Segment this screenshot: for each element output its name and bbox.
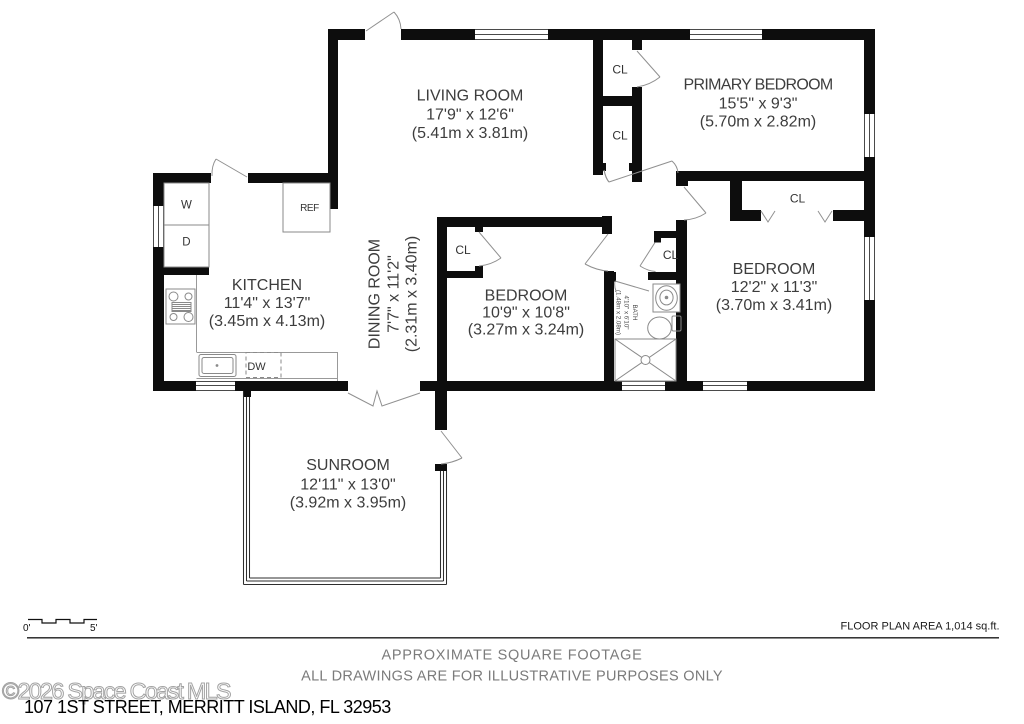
svg-text:CL: CL	[612, 129, 628, 143]
svg-text:(5.41m x 3.81m): (5.41m x 3.81m)	[412, 125, 528, 142]
svg-text:0': 0'	[23, 623, 31, 634]
svg-text:CL: CL	[663, 248, 679, 262]
svg-text:CL: CL	[790, 192, 806, 206]
svg-text:(3.45m x 4.13m): (3.45m x 4.13m)	[209, 313, 325, 330]
svg-text:(3.92m x 3.95m): (3.92m x 3.95m)	[290, 495, 406, 512]
svg-text:REF: REF	[300, 203, 319, 214]
svg-text:11'4" x 13'7": 11'4" x 13'7"	[224, 295, 311, 312]
svg-text:FLOOR PLAN AREA 1,014 sq.ft.: FLOOR PLAN AREA 1,014 sq.ft.	[841, 621, 1000, 633]
svg-text:LIVING ROOM: LIVING ROOM	[417, 88, 524, 105]
svg-text:(1.48m x 2.08m): (1.48m x 2.08m)	[614, 290, 621, 335]
svg-text:CL: CL	[612, 63, 628, 77]
svg-text:PRIMARY BEDROOM: PRIMARY BEDROOM	[684, 77, 833, 94]
svg-text:12'11" x 13'0": 12'11" x 13'0"	[300, 477, 395, 494]
svg-text:BEDROOM: BEDROOM	[485, 288, 568, 305]
svg-text:107 1ST STREET, MERRITT ISLAND: 107 1ST STREET, MERRITT ISLAND, FL 32953	[24, 697, 391, 717]
svg-text:17'9" x 12'6": 17'9" x 12'6"	[426, 107, 514, 124]
svg-text:BATH: BATH	[631, 304, 638, 320]
svg-text:W: W	[181, 200, 192, 212]
svg-text:15'5" x 9'3": 15'5" x 9'3"	[719, 96, 798, 113]
svg-text:DW: DW	[247, 361, 266, 373]
svg-text:CL: CL	[455, 243, 471, 257]
svg-text:BEDROOM: BEDROOM	[733, 261, 816, 278]
svg-text:APPROXIMATE SQUARE FOOTAGE: APPROXIMATE SQUARE FOOTAGE	[382, 648, 643, 664]
svg-text:ALL DRAWINGS ARE FOR ILLUSTRAT: ALL DRAWINGS ARE FOR ILLUSTRATIVE PURPOS…	[301, 669, 723, 685]
svg-text:7'7" x 11'2": 7'7" x 11'2"	[386, 255, 403, 333]
svg-text:DINING ROOM: DINING ROOM	[367, 239, 384, 349]
svg-text:4'10" x 6'10": 4'10" x 6'10"	[623, 296, 630, 330]
svg-text:10'9" x 10'8": 10'9" x 10'8"	[482, 305, 570, 322]
svg-text:SUNROOM: SUNROOM	[306, 457, 390, 474]
svg-text:12'2" x 11'3": 12'2" x 11'3"	[731, 279, 818, 296]
svg-text:D: D	[182, 237, 190, 249]
svg-text:5': 5'	[90, 623, 98, 634]
svg-text:(2.31m x 3.40m): (2.31m x 3.40m)	[404, 236, 421, 352]
svg-text:(3.27m x 3.24m): (3.27m x 3.24m)	[468, 322, 584, 339]
svg-text:(5.70m x 2.82m): (5.70m x 2.82m)	[700, 114, 816, 131]
svg-text:KITCHEN: KITCHEN	[232, 277, 302, 294]
svg-text:(3.70m x 3.41m): (3.70m x 3.41m)	[716, 297, 832, 314]
